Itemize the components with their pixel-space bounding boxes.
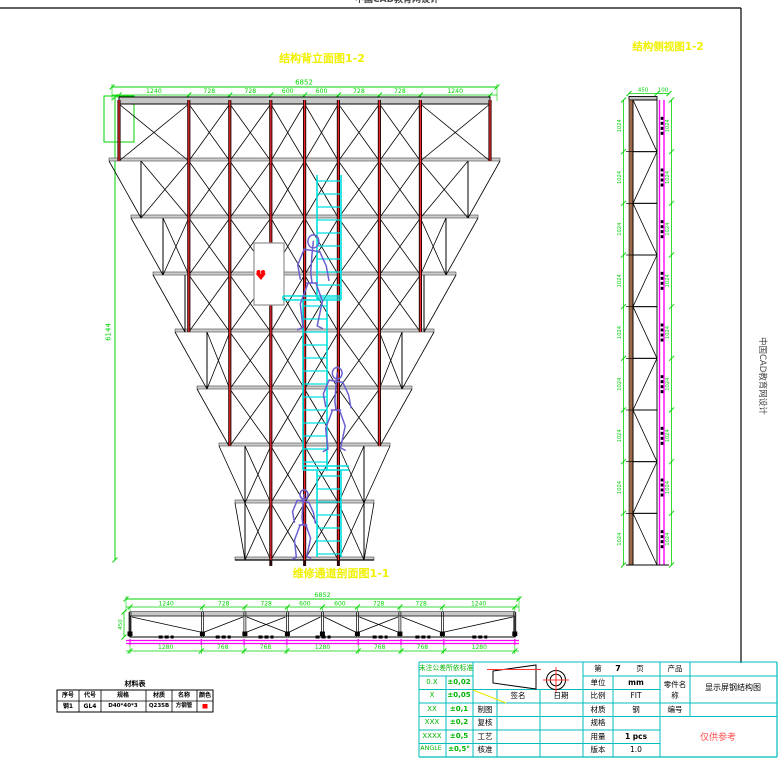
shape	[629, 97, 657, 101]
line	[633, 100, 657, 152]
shape	[661, 385, 664, 388]
shape	[415, 636, 419, 639]
dimension-label: 1280	[158, 644, 173, 651]
material-cell: D40*40*3	[108, 704, 137, 710]
shape	[320, 632, 325, 637]
line	[468, 161, 500, 218]
dimension-label: 1240	[447, 88, 463, 95]
approval-row-label: 核准	[478, 746, 493, 754]
dimension-label: 6144	[105, 323, 113, 341]
dimension-label: 1024	[665, 429, 671, 443]
cad-linework: 6852124072872860060072872812406144450100…	[0, 0, 782, 758]
tolerance-label: XXX	[425, 719, 439, 726]
dimension-label: 1024	[665, 222, 671, 236]
shape	[661, 117, 664, 120]
shape	[242, 632, 247, 637]
part-name-label: 零件名称	[662, 679, 688, 702]
shape	[200, 632, 205, 637]
shape	[661, 380, 664, 383]
shape	[661, 277, 664, 280]
product-label: 产品	[668, 665, 683, 673]
line	[633, 307, 657, 359]
dimension-label: 1280	[472, 644, 487, 651]
shape	[661, 230, 664, 233]
dimension-label: 600	[282, 88, 294, 95]
line	[380, 389, 412, 446]
shape	[355, 632, 360, 637]
shape	[661, 375, 664, 378]
shape	[159, 636, 163, 639]
dimension-label: 450	[638, 88, 649, 94]
shape	[661, 432, 664, 435]
dimension-label: 1024	[665, 480, 671, 494]
tolerance-label: ANGLE	[420, 746, 441, 752]
line	[131, 218, 163, 275]
shape	[328, 636, 331, 639]
dimension-label: 1024	[665, 325, 671, 339]
page-number: 7	[615, 665, 621, 673]
shape	[484, 636, 487, 639]
shape	[661, 282, 664, 285]
material-header: 代号	[84, 693, 96, 699]
shape	[661, 437, 664, 440]
line	[402, 617, 441, 632]
info-label: 比例	[591, 692, 606, 700]
dimension-label: 600	[316, 88, 328, 95]
shape	[259, 636, 263, 639]
shape	[661, 235, 664, 238]
dimension-label: 1024	[617, 377, 623, 391]
line	[175, 332, 207, 389]
approval-row-label: 复核	[478, 719, 493, 727]
line	[364, 446, 390, 503]
shape	[661, 479, 664, 482]
line	[444, 617, 512, 632]
dimension-label: 100	[658, 88, 669, 94]
sign-header: 签名	[511, 692, 526, 700]
shape	[661, 545, 664, 548]
dimension-label: 1024	[617, 274, 623, 288]
dimension-label: 728	[394, 88, 406, 95]
material-cell: GL4	[84, 704, 97, 710]
section-view-title: 维修通道剖面图1-1	[293, 568, 390, 579]
dimension-label: 1240	[159, 601, 174, 608]
tolerance-standard-header: 未注公差所依标准	[419, 665, 473, 672]
shape	[661, 442, 664, 445]
page-suffix: 页	[636, 665, 644, 673]
info-value: mm	[628, 679, 644, 687]
tolerance-value: ±0,5°	[448, 746, 470, 753]
shape	[661, 427, 664, 430]
shape	[478, 636, 482, 639]
info-value: 1.0	[630, 746, 642, 754]
reference-note: 仅供参考	[700, 734, 736, 743]
line	[235, 503, 245, 560]
dimension-label: 1024	[617, 119, 623, 133]
dimension-label: 768	[217, 644, 229, 651]
info-value: 钢	[632, 706, 640, 714]
line	[364, 503, 374, 560]
shape	[661, 489, 664, 492]
shape	[661, 184, 664, 187]
approval-row-label: 工艺	[478, 733, 493, 741]
tolerance-value: ±0,05	[447, 692, 470, 699]
shape	[661, 169, 664, 172]
line	[446, 218, 478, 275]
shape	[421, 636, 425, 639]
tolerance-value: ±0,2	[450, 719, 468, 726]
shape	[661, 334, 664, 337]
dimension-label: 6852	[314, 591, 331, 599]
shape	[130, 612, 515, 616]
material-header: 规格	[117, 693, 129, 699]
info-label: 规格	[591, 719, 606, 727]
tolerance-value: ±0,5	[450, 733, 468, 740]
material-header: 序号	[62, 693, 74, 699]
line	[633, 255, 657, 307]
tolerance-label: XX	[427, 706, 437, 713]
line	[633, 358, 657, 410]
dimension-label: 1024	[617, 170, 623, 184]
dimension-label: 1024	[665, 170, 671, 184]
line	[197, 389, 229, 446]
dimension-label: 728	[415, 601, 427, 608]
dimension-label: 1024	[617, 532, 623, 546]
material-cell: 方钢管	[176, 704, 193, 710]
shape	[373, 636, 377, 639]
line	[633, 513, 657, 565]
dimension-label: 768	[374, 644, 386, 651]
material-cell: Q235B	[149, 704, 169, 710]
dimension-label: 450	[118, 619, 124, 630]
shape	[222, 636, 226, 639]
dimension-label: 728	[353, 88, 365, 95]
shape	[265, 636, 269, 639]
dimension-label: 1024	[665, 274, 671, 288]
side-view-title: 结构侧视图1-2	[632, 42, 703, 53]
dimension-label: 1024	[665, 532, 671, 546]
shape	[379, 636, 383, 639]
line	[204, 617, 243, 632]
approval-row-label: 制图	[478, 706, 493, 714]
dimension-label: 1024	[665, 119, 671, 133]
shape	[316, 636, 320, 639]
shape	[629, 100, 633, 565]
dimension-label: 728	[244, 88, 256, 95]
shape	[661, 287, 664, 290]
date-header: 日期	[554, 692, 569, 700]
shape	[661, 339, 664, 342]
shape	[427, 636, 430, 639]
material-header: 名称	[178, 693, 190, 699]
line	[324, 617, 355, 632]
line	[132, 617, 200, 632]
shape	[165, 636, 169, 639]
shape	[472, 636, 476, 639]
dimension-label: 1024	[617, 222, 623, 236]
dimension-label: 768	[417, 644, 429, 651]
shape	[661, 329, 664, 332]
shape	[661, 540, 664, 543]
dimension-label: 768	[260, 644, 272, 651]
shape	[228, 636, 231, 639]
shape	[661, 220, 664, 223]
shape	[661, 174, 664, 177]
dimension-label: 728	[260, 601, 272, 608]
side-watermark: 中国CAD教育网设计	[758, 337, 767, 415]
shape	[661, 494, 664, 497]
shape	[397, 632, 402, 637]
shape	[440, 632, 445, 637]
dimension-label: 1240	[146, 88, 162, 95]
line	[633, 152, 657, 204]
material-table-title: 材料表	[125, 681, 146, 688]
info-label: 用量	[591, 733, 606, 741]
line	[109, 161, 141, 218]
info-value: FIT	[630, 692, 641, 700]
shape	[203, 704, 208, 709]
shape	[661, 225, 664, 228]
line	[633, 462, 657, 514]
shape	[128, 632, 133, 637]
dimension-label: 1280	[315, 644, 330, 651]
elevation-view-title: 结构背立面图1-2	[279, 53, 365, 64]
page-prefix: 第	[594, 665, 602, 673]
shape	[661, 179, 664, 182]
dimension-label: 1024	[617, 480, 623, 494]
line	[219, 446, 245, 503]
line	[633, 203, 657, 255]
info-label: 单位	[591, 679, 606, 687]
number-label: 编号	[668, 706, 683, 714]
line	[153, 275, 185, 332]
shape	[385, 636, 388, 639]
shape	[661, 132, 664, 135]
info-value: 1 pcs	[625, 733, 647, 741]
shape	[171, 636, 174, 639]
part-name-value: 显示屏钢结构图	[705, 684, 761, 692]
shape	[216, 636, 220, 639]
material-header: 颜色	[199, 693, 211, 699]
dimension-label: 1024	[665, 377, 671, 391]
shape	[661, 272, 664, 275]
line	[402, 332, 434, 389]
shape	[512, 632, 517, 637]
dimension-label: 600	[299, 601, 311, 608]
shape	[661, 390, 664, 393]
tolerance-label: XXXX	[422, 733, 441, 740]
tolerance-value: ±0,02	[447, 679, 470, 686]
shape	[661, 122, 664, 125]
shape	[271, 636, 274, 639]
shape	[661, 535, 664, 538]
tolerance-label: 0.X	[426, 679, 437, 686]
line	[633, 410, 657, 462]
tolerance-value: ±0,1	[450, 706, 468, 713]
line	[289, 617, 320, 632]
dimension-label: 1240	[471, 601, 486, 608]
line	[424, 275, 456, 332]
info-label: 材质	[591, 706, 606, 714]
dimension-label: 6852	[295, 79, 313, 87]
dimension-label: 1024	[617, 325, 623, 339]
dimension-label: 600	[334, 601, 346, 608]
dimension-label: 1024	[617, 429, 623, 443]
shape	[661, 324, 664, 327]
shape	[661, 530, 664, 533]
shape	[322, 636, 326, 639]
shape	[285, 632, 290, 637]
info-label: 版本	[591, 746, 606, 754]
cad-sheet: { "watermark": { "top": "中国CAD教育网设计", "s…	[0, 0, 782, 758]
material-header: 材质	[153, 693, 165, 699]
dimension-label: 728	[203, 88, 215, 95]
dimension-label: 728	[373, 601, 385, 608]
tolerance-label: X	[430, 692, 435, 699]
material-cell: 钢1	[63, 704, 73, 710]
top-watermark: 中国CAD教育网设计	[355, 0, 439, 5]
dimension-label: 728	[218, 601, 230, 608]
shape	[661, 127, 664, 130]
line	[473, 690, 506, 703]
shape	[661, 484, 664, 487]
